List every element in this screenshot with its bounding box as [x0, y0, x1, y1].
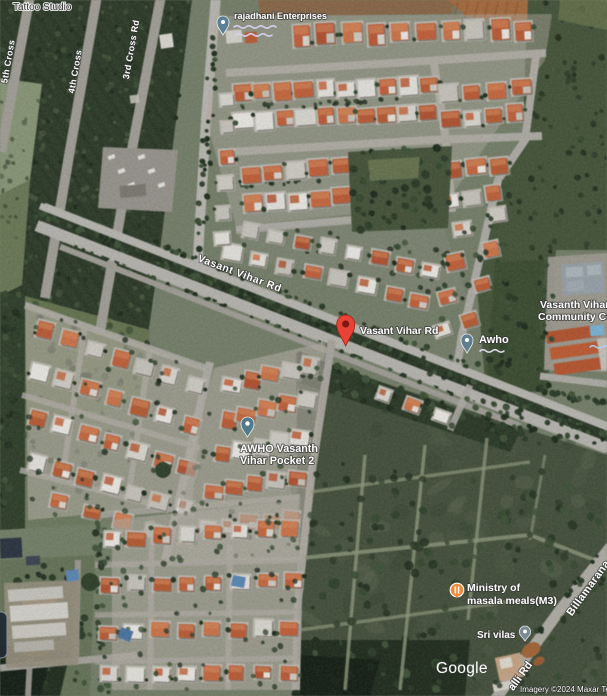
svg-text:Imagery ©2024 Maxar Tech: Imagery ©2024 Maxar Tech [520, 685, 607, 694]
svg-text:3rd Cross Rd: 3rd Cross Rd [121, 19, 141, 80]
svg-text:Vasant Vihar Rd: Vasant Vihar Rd [360, 325, 438, 337]
svg-text:Vasant Vihar Rd: Vasant Vihar Rd [196, 253, 283, 295]
svg-text:Ministry of: Ministry of [467, 582, 521, 594]
svg-text:Vihar Pocket 2: Vihar Pocket 2 [240, 455, 314, 467]
svg-text:Sri vilas: Sri vilas [477, 630, 516, 641]
svg-text:Awho: Awho [479, 334, 509, 346]
svg-text:Community Cen: Community Cen [538, 311, 607, 323]
svg-text:Vasanth Vihar: Vasanth Vihar [540, 299, 607, 311]
svg-text:AWHO Vasanth: AWHO Vasanth [240, 443, 318, 455]
svg-text:rajadhani Enterprises: rajadhani Enterprises [234, 11, 327, 21]
svg-text:5th Cross: 5th Cross [0, 39, 17, 84]
svg-text:Google: Google [436, 660, 488, 677]
svg-text:masala meals(M3): masala meals(M3) [467, 595, 557, 607]
svg-text:Tattoo Studio: Tattoo Studio [13, 2, 72, 13]
svg-text:4th Cross: 4th Cross [66, 49, 84, 94]
svg-text:Billamarana: Billamarana [564, 558, 607, 619]
